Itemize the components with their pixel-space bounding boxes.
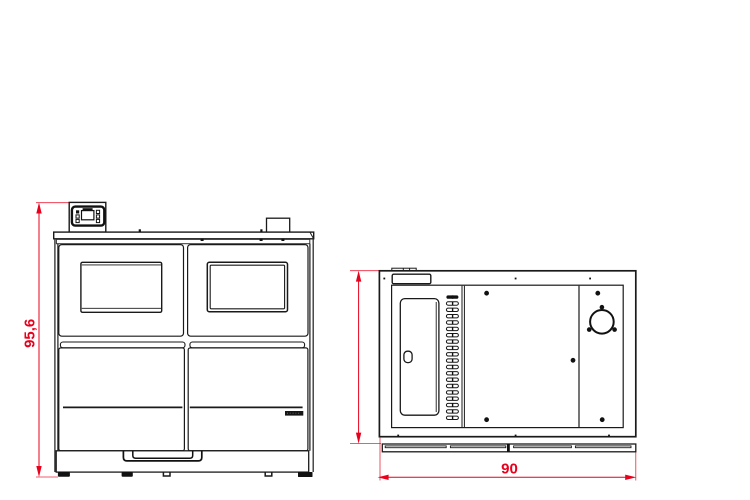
svg-text:90: 90 [501,461,518,478]
svg-text:95,6: 95,6 [22,319,39,348]
